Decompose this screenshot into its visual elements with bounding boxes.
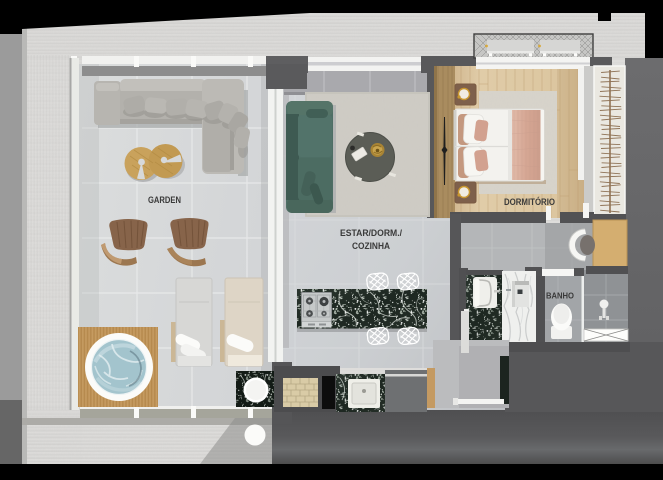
- svg-text:DORMITÓRIO: DORMITÓRIO: [504, 196, 555, 208]
- svg-text:ESTAR/DORM./: ESTAR/DORM./: [340, 228, 402, 239]
- svg-text:BANHO: BANHO: [546, 291, 574, 301]
- svg-text:COZINHA: COZINHA: [352, 241, 390, 252]
- svg-text:GARDEN: GARDEN: [148, 195, 181, 206]
